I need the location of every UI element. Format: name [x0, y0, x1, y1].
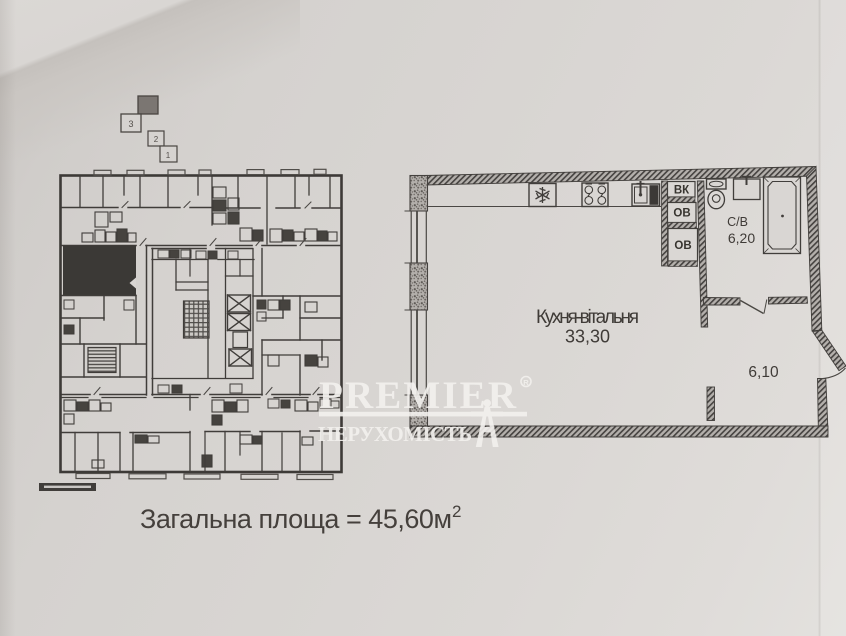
svg-text:НЕРУХОМІСТЬ: НЕРУХОМІСТЬ [318, 422, 474, 446]
svg-text:2: 2 [452, 502, 461, 521]
svg-text:Загальна площа = 45,60м: Загальна площа = 45,60м [140, 504, 452, 534]
svg-text:3: 3 [128, 119, 133, 129]
svg-text:6,10: 6,10 [748, 364, 779, 381]
svg-text:ОВ: ОВ [674, 240, 691, 252]
svg-text:R: R [523, 378, 529, 387]
svg-text:6,20: 6,20 [728, 230, 755, 246]
svg-text:1: 1 [166, 151, 171, 160]
svg-text:С/В: С/В [727, 215, 748, 229]
svg-text:33,30: 33,30 [565, 327, 610, 347]
svg-text:ВК: ВК [674, 185, 690, 197]
svg-text:Кухня-вітальня: Кухня-вітальня [536, 307, 639, 328]
svg-text:ОВ: ОВ [673, 208, 690, 220]
svg-text:2: 2 [154, 135, 159, 144]
